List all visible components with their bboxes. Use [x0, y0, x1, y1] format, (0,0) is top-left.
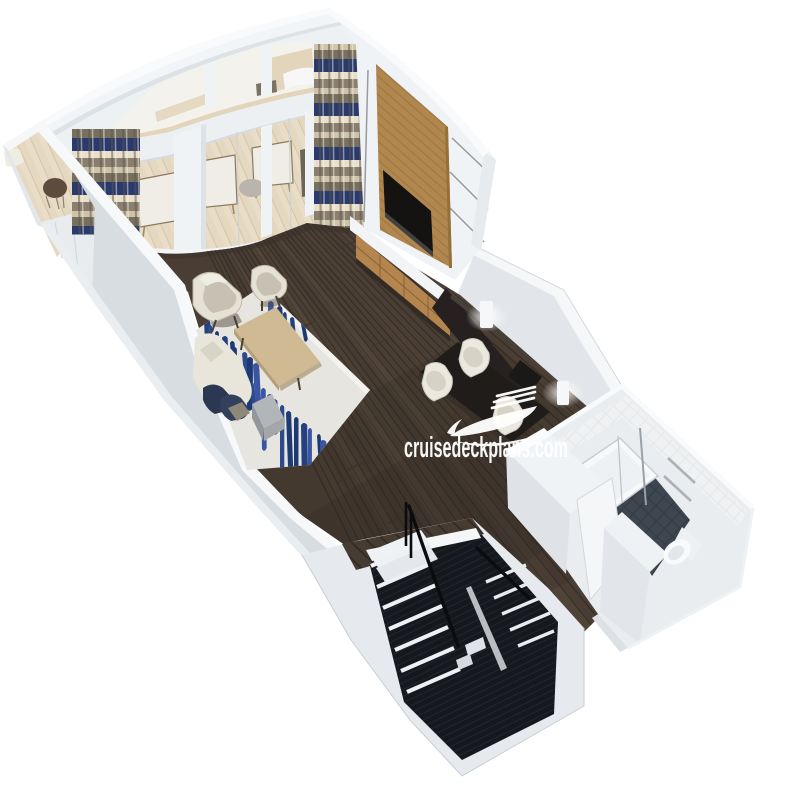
- svg-text:cruisedeckplans.com: cruisedeckplans.com: [404, 432, 568, 464]
